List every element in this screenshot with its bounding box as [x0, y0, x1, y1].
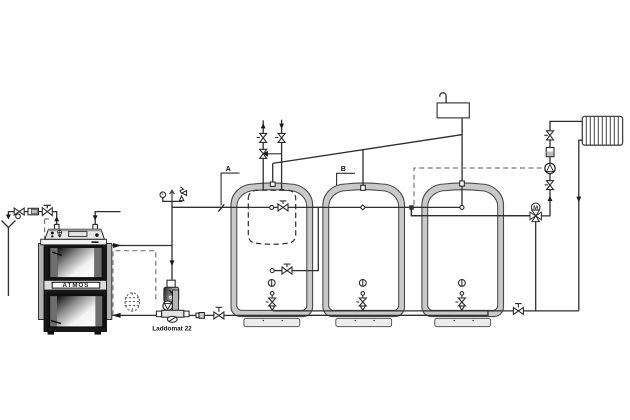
svg-text:A: A — [226, 164, 231, 173]
svg-text:ATMOS: ATMOS — [63, 282, 90, 289]
svg-text:B: B — [341, 164, 346, 173]
svg-text:Laddomat 22: Laddomat 22 — [152, 326, 192, 333]
